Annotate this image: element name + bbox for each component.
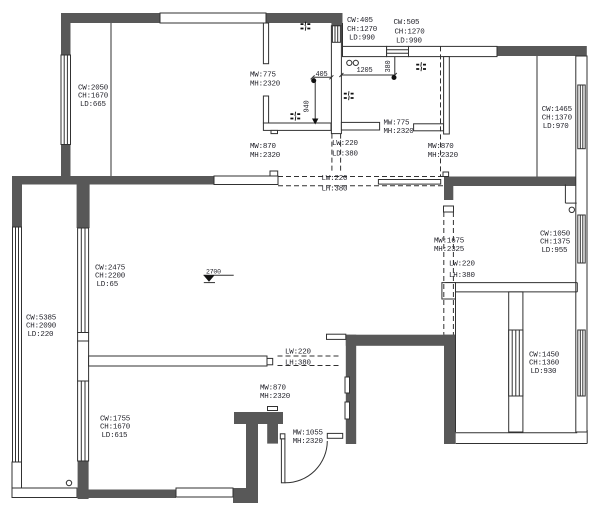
svg-text:MW:870: MW:870 <box>250 143 277 151</box>
svg-text:MH:2320: MH:2320 <box>260 393 291 401</box>
svg-text:MH:2320: MH:2320 <box>428 152 459 160</box>
svg-text:LD:990: LD:990 <box>396 38 423 46</box>
svg-text:940: 940 <box>304 100 312 112</box>
svg-text:MW:870: MW:870 <box>428 143 455 151</box>
svg-text:MW:1675: MW:1675 <box>434 237 465 245</box>
svg-text:LH:380: LH:380 <box>285 359 312 367</box>
svg-text:CH:1370: CH:1370 <box>542 115 573 123</box>
svg-text:MH:2320: MH:2320 <box>293 438 324 446</box>
svg-text:MH:2320: MH:2320 <box>250 81 281 89</box>
svg-text:MH:2320: MH:2320 <box>250 152 281 160</box>
svg-text:LD:990: LD:990 <box>349 34 376 42</box>
svg-text:CH:1375: CH:1375 <box>540 239 571 247</box>
svg-text:MW:775: MW:775 <box>384 119 411 127</box>
svg-text:2700: 2700 <box>206 269 221 276</box>
svg-text:LD:930: LD:930 <box>531 368 558 376</box>
svg-text:LD:65: LD:65 <box>97 281 119 289</box>
svg-text:CH:2200: CH:2200 <box>95 273 126 281</box>
svg-text:MW:775: MW:775 <box>250 71 277 79</box>
svg-text:CW:1050: CW:1050 <box>540 230 571 238</box>
svg-text:380: 380 <box>385 60 393 72</box>
svg-text:MH:2325: MH:2325 <box>434 246 465 254</box>
svg-text:MW:1055: MW:1055 <box>293 429 324 437</box>
svg-text:LD:955: LD:955 <box>542 247 569 255</box>
svg-text:CW:2475: CW:2475 <box>95 264 126 272</box>
svg-text:CW:1450: CW:1450 <box>529 351 560 359</box>
svg-text:CH:1670: CH:1670 <box>78 93 109 101</box>
svg-text:CH:2090: CH:2090 <box>26 323 57 331</box>
svg-text:405: 405 <box>316 71 328 79</box>
svg-text:LH:380: LH:380 <box>449 272 476 280</box>
svg-text:LD:220: LD:220 <box>28 331 55 339</box>
svg-text:CH:1670: CH:1670 <box>100 424 131 432</box>
svg-text:1205: 1205 <box>357 67 373 75</box>
svg-text:LD:380: LD:380 <box>332 151 359 159</box>
svg-text:LW:220: LW:220 <box>449 261 476 269</box>
svg-text:CW:405: CW:405 <box>347 17 374 25</box>
svg-text:LD:665: LD:665 <box>80 101 107 109</box>
svg-text:MH:2320: MH:2320 <box>384 128 415 136</box>
svg-text:CW:2050: CW:2050 <box>78 84 109 92</box>
svg-text:CH:1270: CH:1270 <box>347 26 378 34</box>
svg-text:CW:5385: CW:5385 <box>26 314 57 322</box>
svg-text:CW:1465: CW:1465 <box>542 106 573 114</box>
svg-text:LD:970: LD:970 <box>543 123 570 131</box>
svg-text:LW:220: LW:220 <box>322 175 349 183</box>
svg-text:CH:1360: CH:1360 <box>529 360 560 368</box>
svg-text:LW:220: LW:220 <box>285 349 312 357</box>
svg-text:CW:1755: CW:1755 <box>100 415 131 423</box>
svg-text:MW:870: MW:870 <box>260 384 287 392</box>
svg-text:CH:1270: CH:1270 <box>395 28 426 36</box>
svg-text:LW:220: LW:220 <box>332 140 359 148</box>
svg-text:CW:505: CW:505 <box>394 19 421 27</box>
svg-text:LD:615: LD:615 <box>102 432 129 440</box>
svg-text:LH:380: LH:380 <box>322 186 349 194</box>
